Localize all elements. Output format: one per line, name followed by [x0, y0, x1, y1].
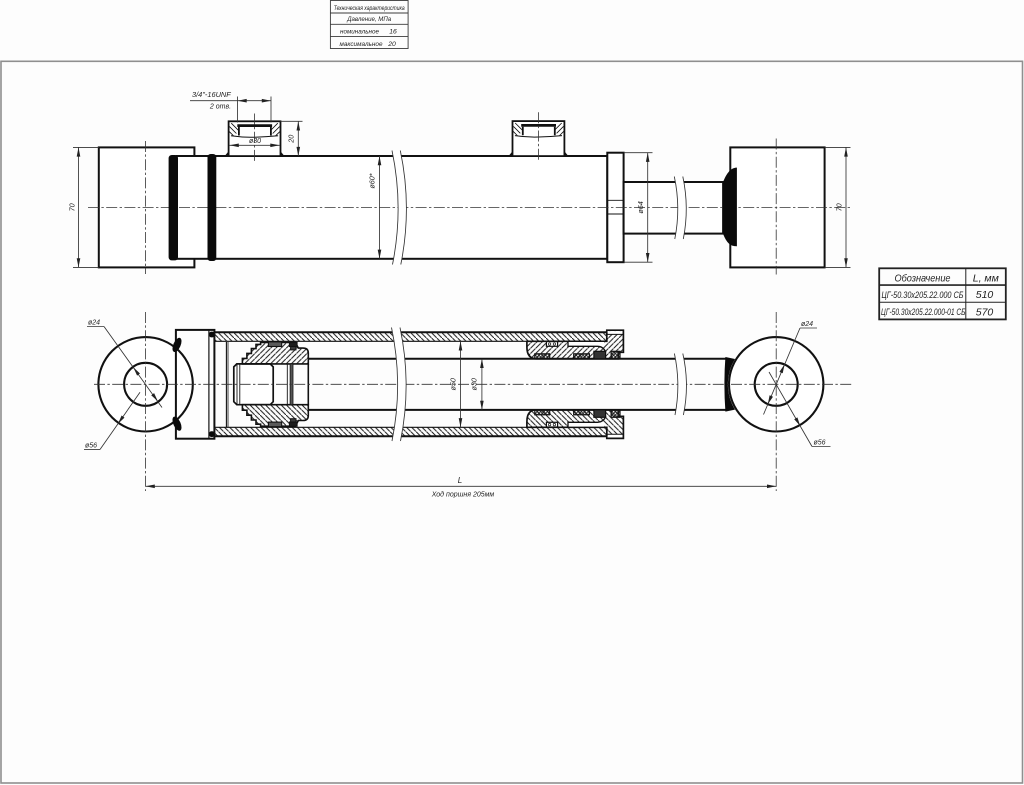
svg-text:ø56: ø56: [85, 443, 97, 450]
svg-text:Ход поршня 205мм: Ход поршня 205мм: [431, 491, 495, 499]
svg-text:ЦГ-50.30х205.22.000 СБ: ЦГ-50.30х205.22.000 СБ: [882, 290, 964, 300]
svg-text:510: 510: [976, 289, 994, 301]
svg-text:ø60*: ø60*: [367, 173, 376, 188]
svg-text:L: L: [458, 476, 462, 485]
svg-text:Техническая характеристика: Техническая характеристика: [334, 5, 405, 12]
svg-text:20: 20: [387, 41, 396, 48]
svg-text:16: 16: [389, 29, 397, 36]
svg-text:ø50: ø50: [448, 378, 457, 390]
svg-text:70: 70: [835, 203, 844, 211]
svg-text:570: 570: [976, 306, 994, 318]
svg-text:ЦГ-50.30х205.22.000-01 СБ: ЦГ-50.30х205.22.000-01 СБ: [881, 307, 966, 317]
svg-text:Давление, МПа: Давление, МПа: [346, 16, 391, 23]
svg-text:ø56: ø56: [814, 439, 826, 446]
svg-text:ø30: ø30: [470, 378, 479, 390]
svg-text:ø24: ø24: [801, 321, 813, 328]
svg-text:70: 70: [68, 203, 77, 211]
svg-text:номинальное: номинальное: [340, 29, 379, 36]
svg-text:ø64: ø64: [636, 201, 645, 213]
svg-text:3/4"-16UNF: 3/4"-16UNF: [192, 90, 231, 99]
svg-text:ø24: ø24: [88, 320, 100, 327]
svg-text:L, мм: L, мм: [973, 273, 999, 285]
svg-text:2 отв.: 2 отв.: [209, 104, 231, 111]
svg-text:20: 20: [287, 135, 296, 144]
svg-text:Обозначение: Обозначение: [895, 273, 951, 285]
svg-text:максимальное: максимальное: [340, 41, 383, 48]
svg-text:ø30: ø30: [249, 138, 261, 145]
